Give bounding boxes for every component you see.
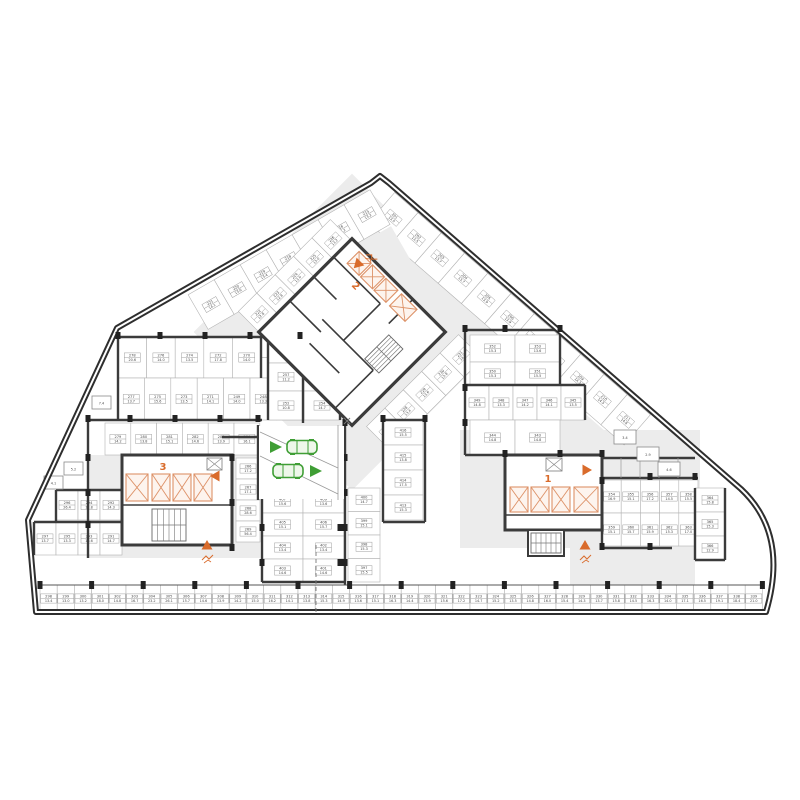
svg-text:14.7: 14.7: [360, 500, 368, 504]
svg-text:403: 403: [279, 566, 286, 570]
svg-text:20.6: 20.6: [129, 358, 137, 362]
svg-text:14.0: 14.0: [157, 358, 165, 362]
svg-text:14.5: 14.5: [665, 497, 673, 501]
svg-text:350: 350: [489, 369, 497, 373]
svg-text:301: 301: [97, 594, 104, 598]
svg-text:5.2: 5.2: [71, 468, 76, 472]
svg-text:294: 294: [86, 501, 94, 505]
svg-text:14.7: 14.7: [318, 406, 326, 410]
svg-text:324: 324: [492, 594, 500, 598]
svg-text:352: 352: [489, 344, 496, 348]
svg-text:360: 360: [627, 525, 635, 529]
stall-label: 33013.7: [591, 594, 607, 603]
stall-label: 36015.7: [623, 525, 639, 534]
svg-text:273: 273: [181, 395, 188, 399]
svg-text:249: 249: [233, 395, 241, 399]
svg-text:26.4: 26.4: [63, 505, 71, 509]
stall-label: 34614.1: [541, 398, 557, 407]
svg-text:354: 354: [608, 492, 616, 496]
stall-label: 27014.0: [239, 353, 255, 362]
svg-text:13.7: 13.7: [41, 539, 49, 543]
svg-text:14.5: 14.5: [630, 599, 638, 603]
svg-text:365: 365: [707, 520, 714, 524]
svg-text:13.4: 13.4: [279, 548, 287, 552]
stall-label: 41417.5: [395, 478, 411, 487]
svg-text:14.8: 14.8: [473, 403, 481, 407]
svg-text:399: 399: [361, 519, 369, 523]
stall-label: 28214.6: [187, 434, 203, 443]
stall-label: 36612.9: [702, 543, 718, 552]
svg-text:353: 353: [534, 344, 541, 348]
svg-text:313: 313: [303, 594, 310, 598]
stall-label: 30214.8: [109, 594, 125, 603]
svg-text:306: 306: [183, 594, 191, 598]
svg-text:356: 356: [647, 492, 655, 496]
stall-label: 32115.6: [436, 594, 452, 603]
svg-text:16.0: 16.0: [544, 599, 552, 603]
svg-text:13.4: 13.4: [320, 548, 328, 552]
stall-label: 35015.3: [485, 369, 501, 378]
svg-text:4.1: 4.1: [51, 482, 56, 486]
svg-text:296: 296: [64, 501, 72, 505]
stall-label: 35115.5: [530, 369, 546, 378]
svg-text:323: 323: [475, 594, 482, 598]
svg-text:15.3: 15.3: [399, 508, 407, 512]
svg-text:14.8: 14.8: [114, 599, 122, 603]
stall-label: 25711.2: [278, 372, 294, 381]
svg-text:14.3: 14.3: [107, 505, 115, 509]
svg-text:346: 346: [546, 398, 554, 402]
stall-label: 31415.3: [316, 594, 332, 603]
stall-label: 27217.8: [210, 353, 226, 362]
svg-text:10.8: 10.8: [282, 406, 290, 410]
svg-text:14.9: 14.9: [337, 599, 345, 603]
svg-text:14.6: 14.6: [200, 599, 208, 603]
svg-text:15.7: 15.7: [320, 525, 328, 529]
svg-text:268: 268: [245, 506, 253, 510]
svg-text:321: 321: [441, 594, 448, 598]
svg-text:18.0: 18.0: [96, 599, 104, 603]
stall-label: 31116.2: [264, 594, 280, 603]
core-3-number: 3: [160, 462, 167, 473]
svg-text:344: 344: [489, 433, 497, 437]
svg-text:13.9: 13.9: [217, 439, 225, 443]
svg-text:359: 359: [608, 525, 616, 529]
svg-text:13.5: 13.5: [509, 599, 517, 603]
stall-label: 29713.7: [37, 534, 53, 543]
stall-label: 33616.5: [694, 594, 710, 603]
svg-text:281: 281: [166, 435, 173, 439]
svg-text:15.1: 15.1: [372, 599, 380, 603]
svg-text:282: 282: [192, 435, 199, 439]
svg-text:15.8: 15.8: [612, 599, 620, 603]
stall-label: 35313.6: [530, 344, 546, 353]
svg-text:316: 316: [355, 594, 363, 598]
stall-label: 35515.1: [623, 492, 639, 501]
svg-text:334: 334: [664, 594, 672, 598]
svg-text:404: 404: [279, 543, 287, 547]
stall-label: 32614.8: [522, 594, 538, 603]
svg-text:266: 266: [245, 464, 253, 468]
car-icon: [273, 463, 303, 479]
svg-text:400: 400: [361, 496, 369, 500]
svg-text:15.6: 15.6: [279, 502, 287, 506]
svg-text:303: 303: [131, 594, 138, 598]
svg-text:298: 298: [45, 594, 53, 598]
svg-text:11.2: 11.2: [282, 377, 290, 381]
svg-text:15.1: 15.1: [166, 439, 174, 443]
svg-text:295: 295: [64, 534, 71, 538]
svg-text:15.3: 15.3: [360, 547, 368, 551]
svg-text:269: 269: [245, 527, 253, 531]
stall-label: 32914.3: [574, 594, 590, 603]
stall-label: 40615.7: [316, 520, 332, 529]
svg-text:15.6: 15.6: [440, 599, 448, 603]
svg-text:278: 278: [129, 353, 137, 357]
stall-label: 30423.2: [144, 594, 160, 603]
svg-text:14.2: 14.2: [521, 403, 529, 407]
svg-text:17.5: 17.5: [399, 483, 407, 487]
stall-label: 27413.5: [182, 353, 198, 362]
svg-text:326: 326: [527, 594, 535, 598]
stall-label: 40213.4: [316, 543, 332, 552]
stall-label: 25210.8: [278, 401, 294, 410]
svg-text:348: 348: [498, 398, 506, 402]
svg-text:252: 252: [283, 401, 290, 405]
svg-text:15.2: 15.2: [492, 599, 500, 603]
stall-label: 41513.8: [395, 453, 411, 462]
svg-text:14.1: 14.1: [286, 599, 294, 603]
svg-text:14.0: 14.0: [243, 358, 251, 362]
car-icon: [287, 439, 317, 455]
stall-label: 39815.3: [356, 542, 372, 551]
svg-text:248: 248: [260, 395, 268, 399]
svg-text:336: 336: [699, 594, 707, 598]
stall-label: 40014.7: [356, 495, 372, 504]
svg-text:14.4: 14.4: [406, 599, 414, 603]
stall-label: 28013.8: [136, 434, 152, 443]
svg-text:314: 314: [320, 594, 328, 598]
svg-text:347: 347: [522, 398, 529, 402]
svg-text:14.8: 14.8: [526, 599, 534, 603]
svg-text:329: 329: [578, 594, 586, 598]
stall-label: 31816.3: [385, 594, 401, 603]
stall-label: 36515.3: [702, 519, 718, 528]
svg-text:276: 276: [157, 353, 165, 357]
stall-label: 39715.5: [356, 566, 372, 575]
svg-text:17.1: 17.1: [244, 490, 252, 494]
stall-label: 32513.5: [505, 594, 521, 603]
stall-label: 28115.1: [162, 434, 178, 443]
stall-label: 40413.4: [275, 543, 291, 552]
svg-text:328: 328: [561, 594, 569, 598]
svg-text:357: 357: [666, 492, 673, 496]
svg-text:14.6: 14.6: [320, 571, 328, 575]
svg-text:14.7: 14.7: [107, 539, 115, 543]
svg-text:310: 310: [252, 594, 260, 598]
svg-text:292: 292: [108, 501, 115, 505]
svg-text:333: 333: [647, 594, 654, 598]
svg-text:319: 319: [406, 594, 414, 598]
svg-text:15.5: 15.5: [685, 497, 693, 501]
svg-text:358: 358: [685, 492, 693, 496]
svg-text:13.5: 13.5: [186, 358, 194, 362]
svg-text:14.2: 14.2: [234, 599, 242, 603]
svg-text:317: 317: [372, 594, 379, 598]
svg-text:13.2: 13.2: [79, 599, 87, 603]
stall-label: 30316.7: [127, 594, 143, 603]
stall-label: 30118.0: [92, 594, 108, 603]
svg-text:279: 279: [114, 435, 122, 439]
svg-text:17.0: 17.0: [685, 530, 693, 534]
svg-text:364: 364: [707, 496, 715, 500]
svg-text:361: 361: [647, 525, 654, 529]
svg-text:414: 414: [400, 478, 408, 482]
svg-text:16.7: 16.7: [131, 599, 139, 603]
stall-label: 26717.1: [240, 485, 256, 494]
svg-text:320: 320: [424, 594, 432, 598]
stall-label: 35915.1: [604, 525, 620, 534]
svg-text:16.9: 16.9: [608, 497, 616, 501]
svg-text:15.9: 15.9: [646, 530, 654, 534]
stall-label: 31214.1: [281, 594, 297, 603]
stall-label: 27820.6: [124, 353, 140, 362]
svg-text:274: 274: [186, 353, 194, 357]
svg-text:14.7: 14.7: [475, 599, 483, 603]
stall-label: 31914.4: [402, 594, 418, 603]
svg-text:325: 325: [510, 594, 517, 598]
svg-text:397: 397: [361, 566, 368, 570]
stall-label: 35714.5: [661, 492, 677, 501]
svg-text:15.1: 15.1: [360, 524, 368, 528]
svg-text:13.7: 13.7: [595, 599, 603, 603]
svg-text:272: 272: [215, 353, 222, 357]
stall-label: 29813.4: [41, 594, 57, 603]
svg-text:14.0: 14.0: [664, 599, 672, 603]
stall-label: 40114.6: [316, 566, 332, 575]
stall-label: 27515.6: [150, 394, 166, 403]
stall-label: 28313.9: [213, 434, 229, 443]
stall-label: 29114.7: [103, 534, 119, 543]
svg-text:15.3: 15.3: [665, 530, 673, 534]
svg-text:299: 299: [62, 594, 70, 598]
svg-text:15.8: 15.8: [706, 500, 714, 504]
svg-text:401: 401: [320, 566, 327, 570]
svg-text:14.2: 14.2: [114, 439, 122, 443]
svg-text:275: 275: [154, 395, 161, 399]
svg-text:270: 270: [243, 353, 251, 357]
svg-text:16.5: 16.5: [698, 599, 706, 603]
stall-label: 31715.1: [367, 594, 383, 603]
svg-text:309: 309: [234, 594, 242, 598]
svg-text:13.3: 13.3: [63, 539, 71, 543]
svg-text:318: 318: [389, 594, 397, 598]
stall-label: 30914.2: [230, 594, 246, 603]
stall-label: 27313.5: [176, 394, 192, 403]
stall-label: 33517.1: [677, 594, 693, 603]
svg-text:12.9: 12.9: [706, 548, 714, 552]
stall-label: 30013.2: [75, 594, 91, 603]
svg-text:14.3: 14.3: [578, 599, 586, 603]
svg-text:15.3: 15.3: [320, 599, 328, 603]
stall-label: 27614.0: [153, 353, 169, 362]
svg-text:15.7: 15.7: [627, 530, 635, 534]
svg-text:3.4: 3.4: [622, 436, 627, 440]
svg-text:16.1: 16.1: [243, 439, 251, 443]
stall-label: 41315.3: [395, 503, 411, 512]
svg-text:15.3: 15.3: [489, 374, 497, 378]
stall-label: 41615.5: [395, 428, 411, 437]
svg-text:15.6: 15.6: [154, 399, 162, 403]
svg-text:362: 362: [666, 525, 673, 529]
svg-text:16.2: 16.2: [268, 599, 276, 603]
stall-label: 32013.9: [419, 594, 435, 603]
stall-label: 33214.5: [625, 594, 641, 603]
svg-text:305: 305: [166, 594, 173, 598]
svg-text:13.3: 13.3: [497, 403, 505, 407]
stall-label: 34414.8: [485, 433, 501, 442]
svg-text:26.1: 26.1: [165, 599, 173, 603]
svg-text:402: 402: [320, 543, 327, 547]
svg-text:17.2: 17.2: [646, 497, 654, 501]
svg-text:254: 254: [319, 401, 327, 405]
stall-label: 30615.7: [178, 594, 194, 603]
svg-text:14.8: 14.8: [489, 438, 497, 442]
svg-text:14.0: 14.0: [233, 399, 241, 403]
core-1-number: 1: [545, 474, 552, 485]
stall-label: 40314.6: [275, 566, 291, 575]
stall-label: 35215.3: [485, 344, 501, 353]
svg-text:257: 257: [283, 373, 290, 377]
stall-label: 34314.8: [530, 433, 546, 442]
svg-text:13.9: 13.9: [423, 599, 431, 603]
svg-text:311: 311: [269, 594, 276, 598]
stall-label: 31514.9: [333, 594, 349, 603]
svg-text:13.8: 13.8: [399, 458, 407, 462]
svg-text:304: 304: [148, 594, 156, 598]
svg-text:14.8: 14.8: [534, 438, 542, 442]
svg-text:351: 351: [534, 369, 541, 373]
svg-text:13.8: 13.8: [303, 599, 311, 603]
svg-text:327: 327: [544, 594, 551, 598]
stall-label: 27713.7: [123, 394, 139, 403]
svg-text:17.8: 17.8: [214, 358, 222, 362]
svg-text:343: 343: [534, 433, 541, 437]
svg-text:56.4: 56.4: [244, 532, 252, 536]
stall-label: 31313.8: [299, 594, 315, 603]
stall-label: 35617.2: [642, 492, 658, 501]
svg-text:302: 302: [114, 594, 121, 598]
svg-text:405: 405: [279, 520, 286, 524]
stall-label: 33818.4: [729, 594, 745, 603]
svg-text:15.5: 15.5: [534, 374, 542, 378]
svg-text:21.0: 21.0: [750, 599, 758, 603]
stall-label: 33316.3: [643, 594, 659, 603]
svg-text:15.5: 15.5: [360, 571, 368, 575]
stall-label: 31613.6: [350, 594, 366, 603]
svg-text:315: 315: [338, 594, 345, 598]
stall-label: 29626.4: [59, 500, 75, 509]
stall-label: 27914.2: [110, 434, 126, 443]
svg-text:14.1: 14.1: [545, 403, 553, 407]
svg-text:14.1: 14.1: [207, 399, 215, 403]
svg-text:13.4: 13.4: [45, 599, 53, 603]
svg-text:15.1: 15.1: [627, 497, 635, 501]
svg-text:338: 338: [733, 594, 741, 598]
svg-text:363: 363: [685, 525, 692, 529]
stall-label: 33414.0: [660, 594, 676, 603]
svg-text:312: 312: [286, 594, 293, 598]
svg-text:332: 332: [630, 594, 637, 598]
svg-text:331: 331: [613, 594, 620, 598]
stall-label: 32716.0: [539, 594, 555, 603]
svg-text:15.1: 15.1: [608, 530, 616, 534]
stall-label: 32815.4: [557, 594, 573, 603]
svg-text:18.4: 18.4: [733, 599, 741, 603]
svg-text:4.6: 4.6: [666, 468, 671, 472]
stall-label: 32314.7: [471, 594, 487, 603]
svg-text:416: 416: [400, 428, 408, 432]
svg-text:307: 307: [200, 594, 207, 598]
core-3: 3: [122, 455, 232, 545]
stall-label: 26828.6: [240, 506, 256, 515]
svg-text:15.7: 15.7: [182, 599, 190, 603]
svg-text:13.8: 13.8: [140, 439, 148, 443]
stall-label: 33719.1: [711, 594, 727, 603]
svg-text:13.7: 13.7: [127, 399, 135, 403]
svg-text:15.3: 15.3: [706, 524, 714, 528]
stall-label: 34513.5: [565, 398, 581, 407]
stall-label: 36415.8: [702, 495, 718, 504]
svg-text:335: 335: [682, 594, 689, 598]
stall-label: 24914.0: [229, 394, 245, 403]
svg-text:15.3: 15.3: [489, 349, 497, 353]
stall-label: 29913.0: [58, 594, 74, 603]
stall-label: 39915.1: [356, 519, 372, 528]
svg-text:2.9: 2.9: [645, 453, 650, 457]
stairs-icon: [152, 509, 186, 541]
svg-text:19.1: 19.1: [716, 599, 724, 603]
svg-text:277: 277: [128, 395, 135, 399]
svg-text:13.6: 13.6: [354, 599, 362, 603]
stall-label: 27114.1: [202, 394, 218, 403]
svg-text:345: 345: [570, 398, 577, 402]
svg-text:17.2: 17.2: [244, 469, 252, 473]
floor-plan-canvas: 20113.520213.520313.720413.720513.920613…: [0, 0, 800, 800]
stall-label: 32415.2: [488, 594, 504, 603]
svg-text:300: 300: [80, 594, 88, 598]
stall-label: 36215.3: [661, 525, 677, 534]
svg-text:7.4: 7.4: [99, 402, 104, 406]
svg-text:15.1: 15.1: [279, 525, 287, 529]
svg-text:16.3: 16.3: [389, 599, 397, 603]
svg-text:337: 337: [716, 594, 723, 598]
svg-text:13.6: 13.6: [534, 349, 542, 353]
svg-text:23.2: 23.2: [148, 599, 156, 603]
svg-text:14.6: 14.6: [192, 439, 200, 443]
svg-text:297: 297: [42, 534, 49, 538]
svg-text:349: 349: [474, 398, 482, 402]
svg-text:13.0: 13.0: [62, 599, 70, 603]
stall-label: 33921.0: [746, 594, 762, 603]
svg-text:15.5: 15.5: [399, 433, 407, 437]
stall-label: 30714.6: [195, 594, 211, 603]
svg-text:17.2: 17.2: [458, 599, 466, 603]
svg-text:13.5: 13.5: [569, 403, 577, 407]
svg-text:322: 322: [458, 594, 465, 598]
svg-text:15.0: 15.0: [251, 599, 259, 603]
stall-label: 28416.1: [239, 434, 255, 443]
